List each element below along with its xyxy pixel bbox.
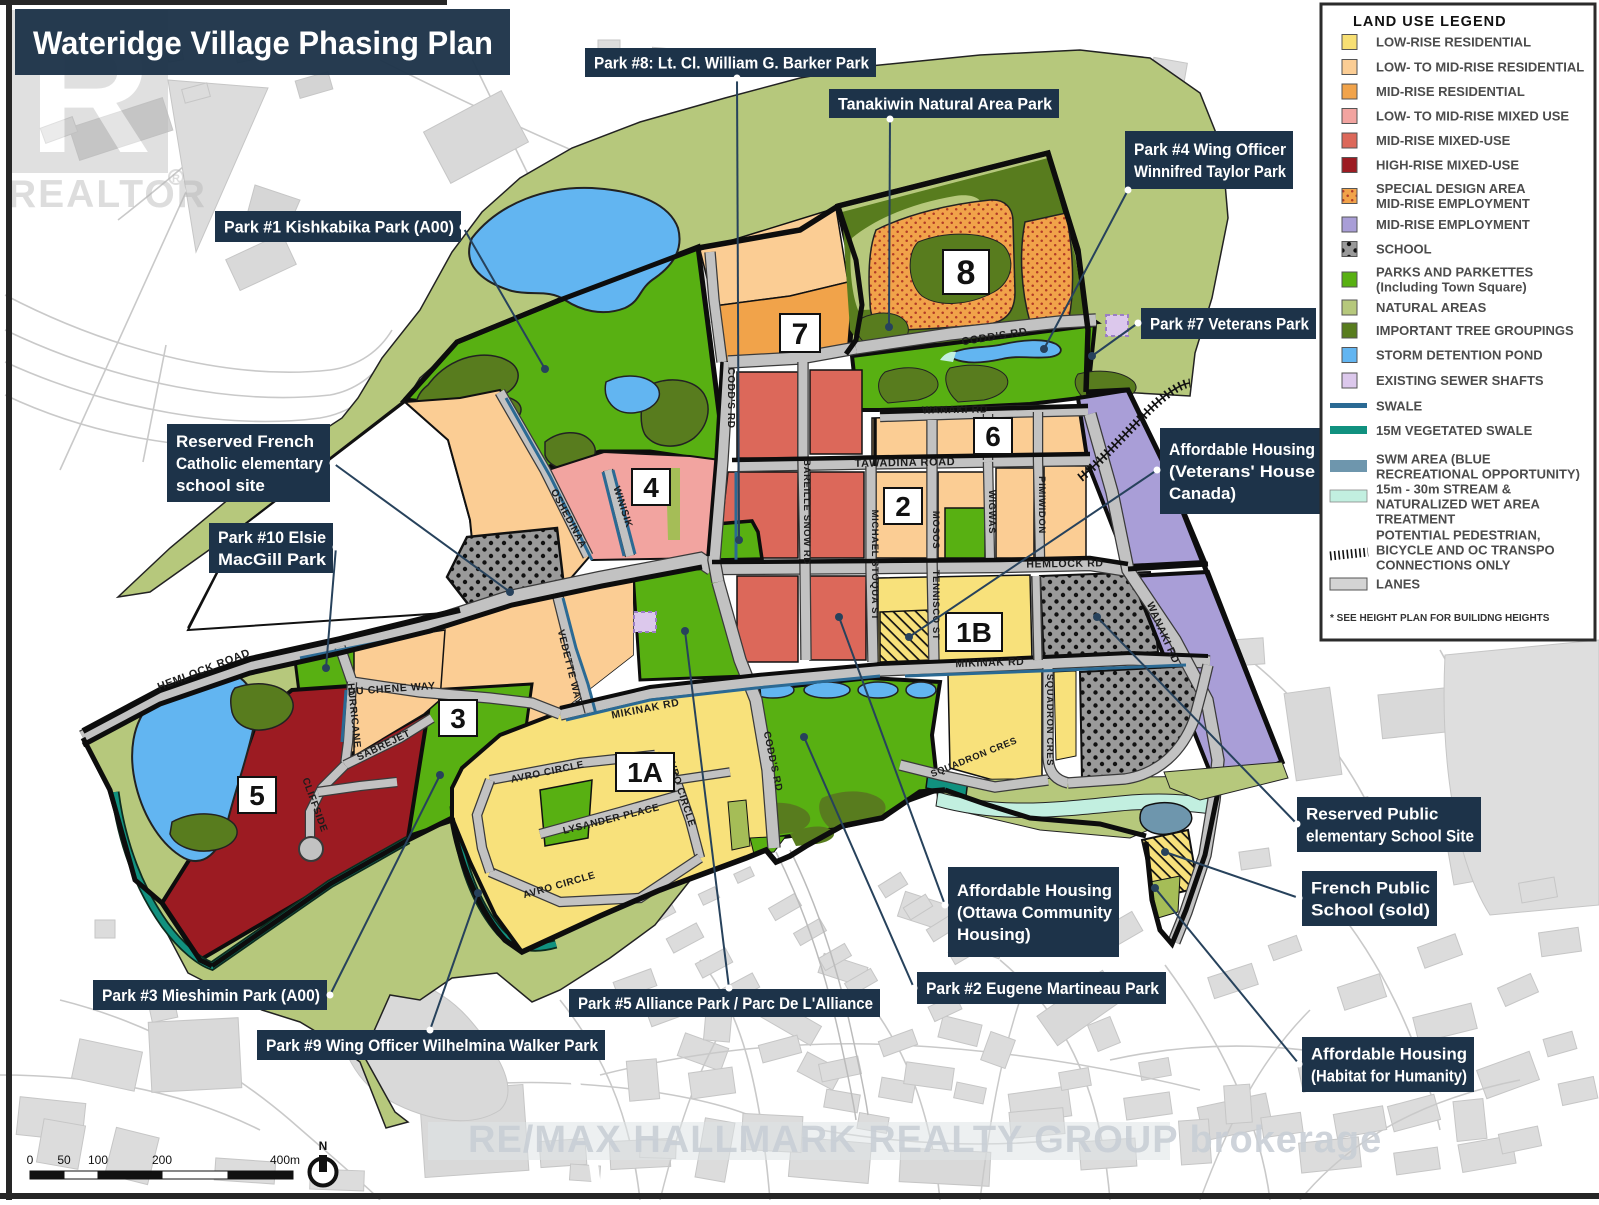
svg-text:Park #5 Alliance Park / Parc D: Park #5 Alliance Park / Parc De L'Allian… (578, 994, 873, 1013)
svg-text:Reserved Public: Reserved Public (1306, 805, 1438, 824)
svg-text:SCHOOL: SCHOOL (1376, 242, 1432, 257)
svg-text:SWALE: SWALE (1376, 399, 1423, 414)
svg-text:(Including Town Square): (Including Town Square) (1376, 280, 1527, 295)
svg-text:School (sold): School (sold) (1311, 901, 1430, 920)
svg-text:BICYCLE AND OC TRANSPO: BICYCLE AND OC TRANSPO (1376, 543, 1555, 558)
svg-text:1A: 1A (627, 757, 663, 788)
svg-text:(Habitat for Humanity): (Habitat for Humanity) (1311, 1067, 1467, 1086)
svg-text:PARKS AND PARKETTES: PARKS AND PARKETTES (1376, 265, 1534, 280)
svg-text:SWM AREA (BLUE: SWM AREA (BLUE (1376, 452, 1491, 467)
svg-text:(Veterans' House: (Veterans' House (1169, 462, 1315, 481)
svg-text:WIGWAS: WIGWAS (986, 490, 997, 534)
svg-text:PIMIWIDON: PIMIWIDON (1036, 476, 1047, 534)
svg-text:Park #7 Veterans Park: Park #7 Veterans Park (1150, 314, 1309, 333)
svg-text:Park #2 Eugene Martineau Park: Park #2 Eugene Martineau Park (926, 979, 1159, 998)
svg-text:(Ottawa Community: (Ottawa Community (957, 903, 1113, 922)
svg-text:STORM DETENTION POND: STORM DETENTION POND (1376, 348, 1543, 363)
svg-text:50: 50 (57, 1153, 71, 1167)
svg-text:SQUADRON CRES: SQUADRON CRES (1044, 674, 1055, 766)
svg-text:elementary School Site: elementary School Site (1306, 827, 1474, 846)
svg-text:LOW-RISE RESIDENTIAL: LOW-RISE RESIDENTIAL (1376, 35, 1531, 50)
svg-text:6: 6 (985, 421, 1001, 452)
svg-text:Park #3 Mieshimin Park (A00): Park #3 Mieshimin Park (A00) (102, 986, 320, 1005)
svg-text:1B: 1B (956, 617, 992, 648)
svg-text:BAREILLE SNOW RD: BAREILLE SNOW RD (801, 459, 812, 565)
svg-text:Affordable Housing: Affordable Housing (1311, 1045, 1467, 1064)
svg-text:Housing): Housing) (957, 925, 1031, 944)
svg-text:7: 7 (792, 318, 809, 351)
svg-text:MID-RISE EMPLOYMENT: MID-RISE EMPLOYMENT (1376, 217, 1530, 232)
svg-text:4: 4 (643, 472, 659, 503)
svg-text:HEMLOCK RD: HEMLOCK RD (1026, 557, 1103, 570)
svg-text:LAND USE LEGEND: LAND USE LEGEND (1353, 14, 1507, 30)
svg-text:LOW- TO MID-RISE RESIDENTIAL: LOW- TO MID-RISE RESIDENTIAL (1376, 60, 1584, 75)
svg-text:WANAKI RD: WANAKI RD (922, 403, 988, 416)
svg-text:MID-RISE RESIDENTIAL: MID-RISE RESIDENTIAL (1376, 84, 1525, 99)
svg-text:3: 3 (450, 703, 466, 734)
svg-text:15m - 30m STREAM &: 15m - 30m STREAM & (1376, 482, 1511, 497)
svg-text:8: 8 (957, 254, 976, 292)
svg-text:TAWADINA ROAD: TAWADINA ROAD (855, 456, 956, 470)
svg-text:LANES: LANES (1376, 577, 1420, 592)
svg-text:MOSOS: MOSOS (930, 511, 941, 549)
svg-text:N: N (319, 1139, 328, 1153)
svg-text:5: 5 (249, 780, 265, 811)
svg-text:CONNECTIONS ONLY: CONNECTIONS ONLY (1376, 558, 1511, 573)
svg-text:0: 0 (27, 1153, 34, 1167)
svg-text:Park #8: Lt. Cl. William G. Ba: Park #8: Lt. Cl. William G. Barker Park (594, 54, 869, 73)
svg-text:HIGH-RISE MIXED-USE: HIGH-RISE MIXED-USE (1376, 158, 1519, 173)
svg-text:MID-RISE EMPLOYMENT: MID-RISE EMPLOYMENT (1376, 196, 1530, 211)
svg-text:Catholic elementary: Catholic elementary (176, 454, 323, 473)
svg-text:NATURALIZED WET AREA: NATURALIZED WET AREA (1376, 497, 1541, 512)
svg-text:POTENTIAL PEDESTRIAN,: POTENTIAL PEDESTRIAN, (1376, 528, 1540, 543)
svg-text:French Public: French Public (1311, 879, 1430, 898)
svg-text:100: 100 (88, 1153, 108, 1167)
svg-text:TENNISCO ST: TENNISCO ST (930, 570, 941, 640)
svg-text:NATURAL AREAS: NATURAL AREAS (1376, 300, 1487, 315)
svg-text:Park #9 Wing Officer Wilhelmin: Park #9 Wing Officer Wilhelmina Walker P… (266, 1036, 598, 1055)
svg-text:Park #1 Kishkabika Park (A00): Park #1 Kishkabika Park (A00) (224, 217, 454, 236)
svg-text:MacGill Park: MacGill Park (218, 550, 327, 569)
svg-text:* SEE HEIGHT PLAN FOR BUILIDNG: * SEE HEIGHT PLAN FOR BUILIDNG HEIGHTS (1330, 613, 1550, 624)
svg-text:SPECIAL DESIGN AREA: SPECIAL DESIGN AREA (1376, 181, 1526, 196)
svg-text:15M VEGETATED SWALE: 15M VEGETATED SWALE (1376, 423, 1533, 438)
svg-text:school site: school site (176, 476, 265, 495)
svg-text:CODD'S RD: CODD'S RD (725, 367, 736, 428)
svg-text:RE/MAX HALLMARK REALTY GROUP: RE/MAX HALLMARK REALTY GROUP brokerage (468, 1119, 1382, 1161)
svg-text:Park #10 Elsie: Park #10 Elsie (218, 528, 326, 547)
svg-text:Canada): Canada) (1169, 484, 1236, 503)
svg-text:400m: 400m (270, 1153, 300, 1167)
svg-text:Affordable Housing: Affordable Housing (957, 881, 1112, 900)
svg-text:LOW- TO MID-RISE MIXED USE: LOW- TO MID-RISE MIXED USE (1376, 109, 1569, 124)
svg-text:EXISTING SEWER SHAFTS: EXISTING SEWER SHAFTS (1376, 373, 1544, 388)
svg-text:RECREATIONAL OPPORTUNITY): RECREATIONAL OPPORTUNITY) (1376, 467, 1580, 482)
svg-text:200: 200 (152, 1153, 172, 1167)
svg-text:MIKINAK RD: MIKINAK RD (955, 656, 1024, 670)
svg-text:R: R (172, 173, 180, 185)
svg-text:IMPORTANT TREE GROUPINGS: IMPORTANT TREE GROUPINGS (1376, 323, 1574, 338)
svg-text:MICHAEL STOQUA ST: MICHAEL STOQUA ST (869, 510, 880, 621)
svg-text:TREATMENT: TREATMENT (1376, 512, 1455, 527)
svg-text:MID-RISE MIXED-USE: MID-RISE MIXED-USE (1376, 133, 1511, 148)
svg-text:Affordable Housing: Affordable Housing (1169, 440, 1315, 459)
svg-text:2: 2 (895, 491, 911, 522)
svg-text:Reserved French: Reserved French (176, 432, 314, 451)
svg-text:Wateridge Village Phasing Plan: Wateridge Village Phasing Plan (33, 25, 493, 61)
svg-text:Park #4 Wing Officer: Park #4 Wing Officer (1134, 140, 1286, 159)
svg-text:Tanakiwin Natural Area Park: Tanakiwin Natural Area Park (838, 95, 1053, 114)
svg-text:Winnifred Taylor Park: Winnifred Taylor Park (1134, 162, 1286, 181)
